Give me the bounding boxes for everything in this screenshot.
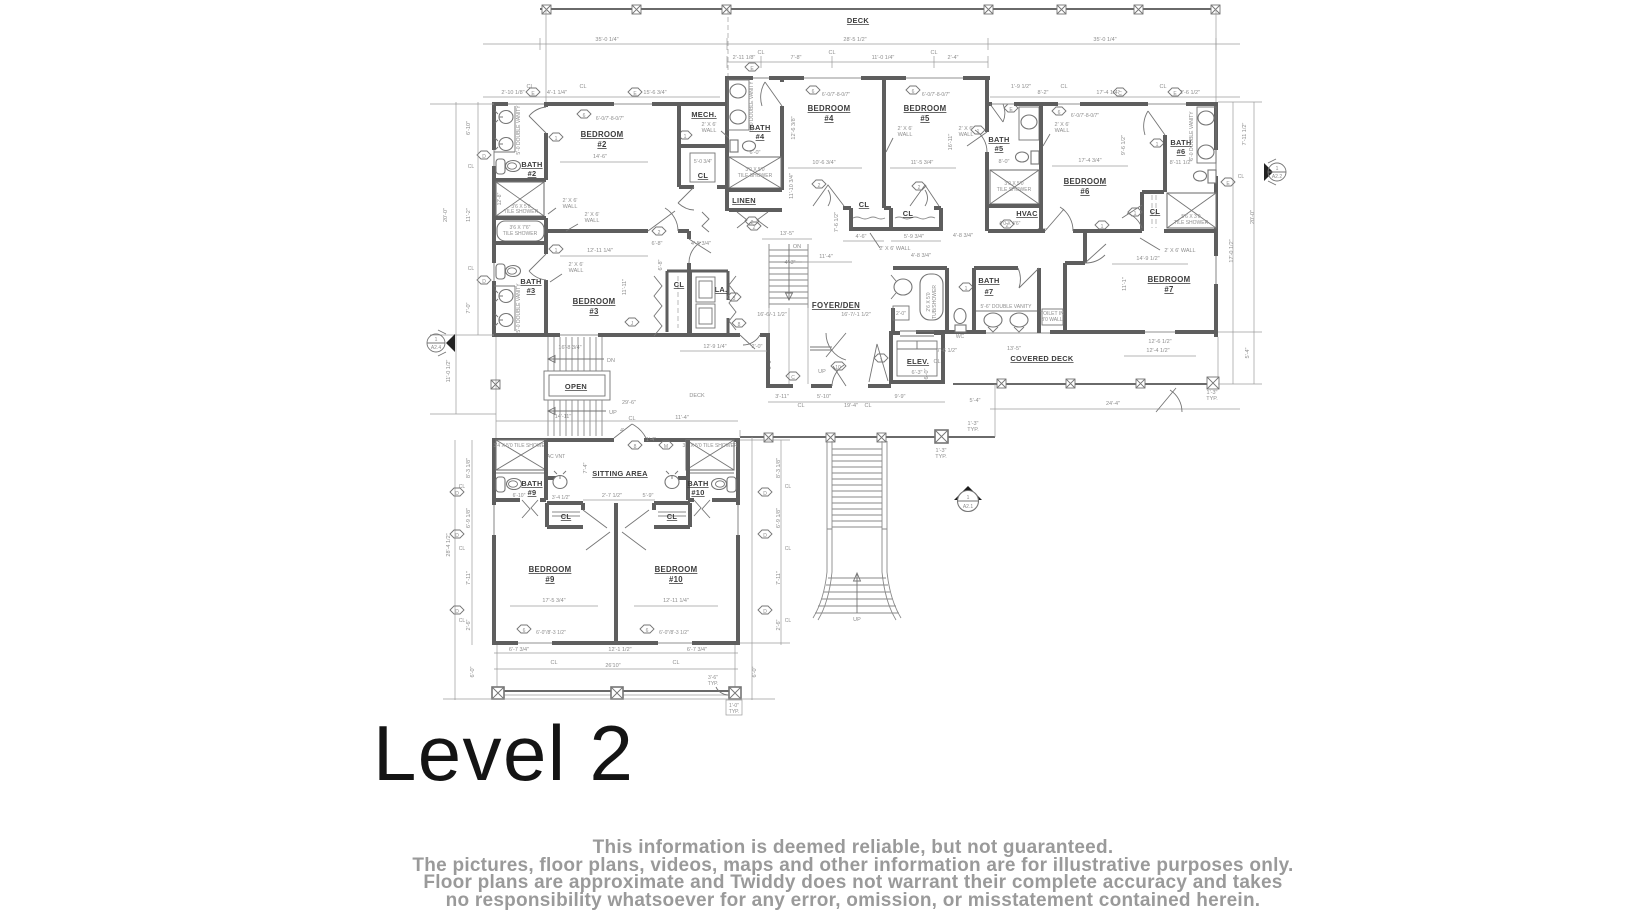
svg-text:5'-10": 5'-10": [817, 394, 831, 400]
svg-text:2: 2: [918, 185, 921, 191]
svg-text:#3: #3: [589, 307, 599, 316]
svg-text:WALL: WALL: [585, 218, 600, 224]
svg-text:CL: CL: [459, 618, 466, 624]
svg-text:11'-10 3/4": 11'-10 3/4": [789, 173, 795, 199]
svg-text:13'-5": 13'-5": [780, 231, 794, 237]
svg-text:6'-0"/8'-3 1/2": 6'-0"/8'-3 1/2": [536, 630, 566, 636]
svg-text:BATH: BATH: [521, 479, 542, 488]
svg-text:1'-9 1/2": 1'-9 1/2": [1011, 84, 1031, 90]
svg-text:17'-5 3/4": 17'-5 3/4": [542, 598, 565, 604]
svg-text:CL: CL: [933, 359, 940, 365]
svg-text:WALL: WALL: [959, 132, 974, 138]
svg-text:6'-7 3/4": 6'-7 3/4": [687, 647, 707, 653]
svg-text:3'0 WALL: 3'0 WALL: [1041, 317, 1063, 323]
svg-text:DN: DN: [607, 358, 615, 364]
svg-text:BATH: BATH: [978, 276, 999, 285]
svg-text:1: 1: [684, 134, 687, 140]
svg-text:TYP.: TYP.: [935, 454, 947, 460]
svg-text:16'-7/-1 1/2": 16'-7/-1 1/2": [841, 312, 871, 318]
svg-text:2'-6": 2'-6": [776, 619, 782, 630]
svg-text:1: 1: [965, 286, 968, 292]
svg-text:4'-6": 4'-6": [856, 234, 867, 240]
svg-text:6'-10": 6'-10": [466, 121, 472, 135]
svg-text:TILE SHOWER: TILE SHOWER: [1174, 220, 1209, 226]
svg-text:5'-9 3/4": 5'-9 3/4": [904, 234, 924, 240]
svg-text:5'-0 DOUBLE VANITY: 5'-0 DOUBLE VANITY: [516, 283, 522, 333]
svg-text:CL: CL: [1060, 84, 1067, 90]
svg-text:BATH: BATH: [520, 277, 541, 286]
svg-text:WALL: WALL: [898, 132, 913, 138]
svg-text:CL: CL: [459, 546, 466, 552]
svg-text:4'-1 1/4": 4'-1 1/4": [547, 90, 567, 96]
svg-text:6'-9 1/8": 6'-9 1/8": [776, 508, 782, 528]
svg-text:8'-3 1/8": 8'-3 1/8": [466, 458, 472, 478]
svg-text:BEDROOM: BEDROOM: [573, 297, 616, 306]
svg-text:6'-0": 6'-0": [752, 666, 758, 677]
svg-text:12'-6 3/8": 12'-6 3/8": [791, 116, 797, 139]
svg-text:3'-4 1/2": 3'-4 1/2": [552, 495, 571, 501]
svg-text:D: D: [482, 154, 486, 160]
svg-text:6'-0": 6'-0": [924, 368, 930, 379]
svg-text:26'10": 26'10": [605, 663, 620, 669]
svg-text:4'-5 3/4": 4'-5 3/4": [691, 241, 711, 247]
svg-text:12'-8": 12'-8": [497, 192, 503, 205]
svg-text:CL: CL: [550, 660, 557, 666]
svg-text:#10: #10: [691, 488, 704, 497]
svg-text:WALL: WALL: [702, 128, 717, 134]
svg-text:12'-9 1/4": 12'-9 1/4": [703, 344, 726, 350]
svg-text:BATH: BATH: [988, 135, 1009, 144]
svg-text:CL: CL: [828, 50, 835, 56]
svg-text:4'-8 3/4": 4'-8 3/4": [911, 253, 931, 259]
svg-text:1: 1: [1134, 211, 1137, 217]
svg-text:1: 1: [1276, 166, 1279, 172]
svg-text:11'-5 3/4": 11'-5 3/4": [911, 160, 934, 166]
svg-text:11'-0 1/2": 11'-0 1/2": [446, 360, 452, 383]
svg-text:TYP.: TYP.: [729, 709, 739, 715]
svg-text:3'-11": 3'-11": [775, 394, 789, 400]
svg-text:17'-0 1/2": 17'-0 1/2": [1229, 239, 1235, 262]
svg-text:CL: CL: [903, 209, 914, 218]
svg-text:6'-0"/8'-3 1/2": 6'-0"/8'-3 1/2": [659, 630, 689, 636]
svg-text:D: D: [482, 279, 486, 285]
svg-text:6: 6: [583, 113, 586, 119]
svg-text:#7: #7: [985, 287, 994, 296]
svg-text:11'-1": 11'-1": [1122, 277, 1128, 291]
svg-text:16'-11": 16'-11": [948, 134, 954, 151]
svg-text:2'-4": 2'-4": [948, 55, 959, 61]
svg-text:6'-0": 6'-0": [750, 150, 761, 156]
svg-text:1: 1: [555, 136, 558, 142]
svg-text:#3: #3: [527, 286, 536, 295]
svg-text:2' X 6' WALL: 2' X 6' WALL: [879, 246, 910, 252]
svg-text:CL: CL: [1238, 174, 1245, 180]
svg-text:19'-4": 19'-4": [844, 403, 858, 409]
svg-text:20'-0": 20'-0": [1250, 210, 1256, 224]
svg-text:COVERED DECK: COVERED DECK: [1010, 354, 1074, 363]
svg-text:UP: UP: [853, 617, 861, 623]
svg-text:12'-6 1/2": 12'-6 1/2": [1148, 339, 1171, 345]
svg-text:6'-3": 6'-3": [912, 370, 923, 376]
svg-text:3'4 X 5'0 TILE SHOWER: 3'4 X 5'0 TILE SHOWER: [683, 443, 738, 449]
svg-text:CL: CL: [579, 84, 586, 90]
svg-text:1: 1: [1156, 142, 1159, 148]
svg-text:C: C: [1118, 91, 1122, 97]
svg-text:5'-0 DOUBLE VANITY: 5'-0 DOUBLE VANITY: [749, 81, 755, 131]
svg-text:2'-7 1/2": 2'-7 1/2": [602, 493, 622, 499]
svg-text:D: D: [455, 609, 459, 615]
svg-text:13'-5": 13'-5": [1007, 346, 1021, 352]
svg-text:11'-4": 11'-4": [819, 254, 833, 260]
svg-text:1: 1: [967, 495, 970, 501]
svg-text:2' X 6' WALL: 2' X 6' WALL: [1164, 248, 1195, 254]
svg-text:BEDROOM: BEDROOM: [655, 565, 698, 574]
svg-text:16'-6/-1 1/2": 16'-6/-1 1/2": [757, 312, 787, 318]
svg-text:A2.4: A2.4: [431, 345, 442, 351]
svg-text:8'-3 1/8": 8'-3 1/8": [776, 458, 782, 478]
svg-text:8: 8: [738, 322, 741, 328]
svg-text:1: 1: [555, 248, 558, 254]
svg-text:LINEN: LINEN: [732, 196, 756, 205]
svg-text:29'-6": 29'-6": [622, 400, 636, 406]
svg-text:CL: CL: [930, 50, 937, 56]
svg-text:UP: UP: [609, 410, 617, 416]
svg-text:7'-11": 7'-11": [776, 571, 782, 585]
svg-text:CL: CL: [1159, 84, 1166, 90]
svg-text:TILE SHOWER: TILE SHOWER: [504, 209, 539, 215]
svg-text:6'-0 DOUBLE VANITY: 6'-0 DOUBLE VANITY: [1189, 111, 1195, 161]
svg-text:2: 2: [751, 220, 754, 226]
svg-text:1'-4": 1'-4": [646, 437, 656, 443]
svg-text:TUB/SHOWER: TUB/SHOWER: [932, 285, 938, 319]
svg-text:2'-6 1/2": 2'-6 1/2": [1180, 90, 1200, 96]
svg-text:WALL: WALL: [569, 268, 584, 274]
svg-text:CL: CL: [757, 50, 764, 56]
svg-text:7'-6 1/2": 7'-6 1/2": [937, 348, 957, 354]
svg-text:11'-0 1/4": 11'-0 1/4": [872, 55, 895, 61]
svg-text:3: 3: [733, 296, 736, 302]
svg-text:CL: CL: [526, 84, 533, 90]
svg-text:CL: CL: [797, 403, 804, 409]
svg-text:D: D: [763, 491, 767, 497]
svg-text:CL: CL: [667, 512, 678, 521]
svg-text:6'-0/7'-8-0/7": 6'-0/7'-8-0/7": [596, 116, 624, 122]
svg-text:5'-6" DOUBLE VANITY: 5'-6" DOUBLE VANITY: [981, 304, 1033, 310]
svg-text:CL: CL: [859, 200, 870, 209]
svg-text:BEDROOM: BEDROOM: [1148, 275, 1191, 284]
svg-text:BEDROOM: BEDROOM: [808, 104, 851, 113]
svg-text:9'-9": 9'-9": [895, 394, 906, 400]
svg-text:WALL: WALL: [563, 204, 578, 210]
svg-text:1: 1: [880, 358, 883, 364]
svg-text:M: M: [664, 444, 668, 450]
svg-text:CL: CL: [672, 660, 679, 666]
svg-text:17'-4 3/4": 17'-4 3/4": [1078, 158, 1101, 164]
svg-text:4': 4': [620, 428, 624, 434]
svg-text:D: D: [763, 533, 767, 539]
svg-text:6'-0/7'-8-0/7": 6'-0/7'-8-0/7": [1071, 113, 1099, 119]
svg-text:12'-11 1/4": 12'-11 1/4": [663, 598, 689, 604]
svg-text:5'-0 3/4": 5'-0 3/4": [694, 159, 713, 165]
svg-text:6: 6: [1058, 110, 1061, 116]
svg-text:BEDROOM: BEDROOM: [1064, 177, 1107, 186]
svg-text:2'-11 1/8": 2'-11 1/8": [733, 55, 756, 61]
svg-text:6'-0": 6'-0": [470, 666, 476, 677]
svg-text:SITTING AREA: SITTING AREA: [592, 469, 648, 478]
svg-text:LA.: LA.: [715, 285, 728, 294]
svg-text:CL: CL: [468, 266, 475, 272]
svg-text:14'-9 1/2": 14'-9 1/2": [1136, 256, 1159, 262]
svg-text:6: 6: [912, 89, 915, 95]
svg-text:6: 6: [523, 628, 526, 634]
svg-text:CL: CL: [785, 546, 792, 552]
svg-text:4'-8 3/4": 4'-8 3/4": [953, 233, 973, 239]
svg-text:WALL: WALL: [1055, 128, 1070, 134]
svg-text:OPEN: OPEN: [565, 382, 587, 391]
svg-text:7'-11 1/2": 7'-11 1/2": [1242, 123, 1248, 146]
svg-text:7'-8": 7'-8": [791, 55, 802, 61]
svg-text:6: 6: [646, 628, 649, 634]
svg-text:5'-4": 5'-4": [1245, 347, 1251, 358]
svg-text:9'-6 1/2": 9'-6 1/2": [1121, 135, 1127, 155]
svg-text:BEDROOM: BEDROOM: [581, 130, 624, 139]
svg-text:FOYER/DEN: FOYER/DEN: [812, 301, 860, 310]
svg-text:C: C: [791, 375, 795, 381]
svg-text:12'-4 1/2": 12'-4 1/2": [1146, 348, 1169, 354]
svg-text:11'-4": 11'-4": [675, 415, 689, 421]
svg-text:7'-0": 7'-0": [466, 302, 472, 313]
svg-text:2'-0": 2'-0": [896, 311, 906, 317]
svg-text:UP: UP: [818, 369, 826, 375]
svg-text:ELEV.: ELEV.: [907, 357, 929, 366]
svg-text:BEDROOM: BEDROOM: [529, 565, 572, 574]
svg-text:#9: #9: [545, 575, 555, 584]
svg-text:4'-3": 4'-3": [785, 260, 796, 266]
svg-text:CL: CL: [674, 280, 685, 289]
svg-text:10: 10: [835, 365, 841, 371]
svg-text:5'-4": 5'-4": [970, 398, 981, 404]
svg-text:#5: #5: [995, 144, 1004, 153]
svg-text:6: 6: [812, 89, 815, 95]
svg-text:CL: CL: [698, 171, 709, 180]
svg-text:DECK: DECK: [689, 393, 705, 399]
svg-text:6'-0/7'-8-0/7": 6'-0/7'-8-0/7": [822, 92, 850, 98]
svg-text:35'-0 1/4": 35'-0 1/4": [595, 37, 618, 43]
svg-text:ON: ON: [793, 244, 801, 250]
svg-text:12'-1 1/2": 12'-1 1/2": [608, 647, 631, 653]
svg-text:BATH: BATH: [521, 160, 542, 169]
svg-text:A2.1: A2.1: [963, 504, 974, 510]
svg-text:6'-8": 6'-8": [652, 241, 663, 247]
svg-text:TILE SHOWER: TILE SHOWER: [997, 187, 1032, 193]
svg-text:WC: WC: [956, 334, 965, 340]
svg-text:20'-0": 20'-0": [443, 208, 449, 222]
svg-text:8'-2": 8'-2": [1038, 90, 1049, 96]
svg-text:10'-6 3/4": 10'-6 3/4": [812, 160, 835, 166]
svg-text:TYP.: TYP.: [708, 681, 718, 687]
svg-text:#6: #6: [1177, 147, 1186, 156]
svg-text:DECK: DECK: [847, 16, 870, 25]
svg-text:#9: #9: [528, 488, 537, 497]
svg-text:8'-0": 8'-0": [999, 159, 1010, 165]
svg-text:D: D: [455, 491, 459, 497]
svg-text:TYP.: TYP.: [967, 427, 979, 433]
svg-text:2'-0": 2'-0": [752, 344, 763, 350]
svg-text:TILE SHOWER: TILE SHOWER: [503, 231, 538, 237]
svg-text:#6: #6: [1080, 187, 1090, 196]
svg-text:6'-7 3/4": 6'-7 3/4": [509, 647, 529, 653]
svg-text:#2: #2: [597, 140, 607, 149]
svg-text:35'-0 1/4": 35'-0 1/4": [1093, 37, 1116, 43]
svg-text:CL: CL: [459, 484, 466, 490]
svg-text:16'-8 3/4": 16'-8 3/4": [558, 345, 581, 351]
svg-text:HVAC: HVAC: [1016, 209, 1038, 218]
svg-text:#4: #4: [824, 114, 834, 123]
svg-text:5'-0 DOUBLE VANITY: 5'-0 DOUBLE VANITY: [516, 105, 522, 155]
svg-text:6'-0/7'-8-0/7": 6'-0/7'-8-0/7": [922, 92, 950, 98]
svg-text:TYP.: TYP.: [1206, 396, 1218, 402]
svg-text:#7: #7: [1164, 285, 1173, 294]
svg-text:2: 2: [818, 183, 821, 189]
svg-text:24'-4": 24'-4": [1106, 401, 1120, 407]
svg-text:D: D: [763, 609, 767, 615]
svg-text:12'-11 1/4": 12'-11 1/4": [587, 248, 613, 254]
svg-text:AC VNT: AC VNT: [547, 454, 565, 460]
svg-text:#10: #10: [669, 575, 683, 584]
svg-text:8: 8: [634, 444, 637, 450]
svg-text:14'-11": 14'-11": [555, 414, 572, 420]
svg-text:1: 1: [435, 337, 438, 343]
svg-text:#4: #4: [756, 132, 765, 141]
svg-text:#5: #5: [920, 114, 930, 123]
svg-text:A2.2: A2.2: [1272, 174, 1283, 180]
svg-text:5'-9": 5'-9": [643, 493, 654, 499]
svg-text:7'-4": 7'-4": [583, 462, 589, 473]
svg-text:6'-9 1/8": 6'-9 1/8": [466, 508, 472, 528]
svg-text:15'-6 3/4": 15'-6 3/4": [643, 90, 666, 96]
svg-text:D: D: [455, 533, 459, 539]
svg-text:7'-6 1/2": 7'-6 1/2": [834, 212, 840, 232]
svg-text:7'-11": 7'-11": [466, 571, 472, 585]
svg-text:CL: CL: [468, 164, 475, 170]
svg-text:2: 2: [1006, 223, 1009, 229]
svg-text:3'4 X 5'0 TILE SHOWER: 3'4 X 5'0 TILE SHOWER: [494, 443, 549, 449]
svg-text:MECH.: MECH.: [691, 110, 716, 119]
svg-text:CL: CL: [561, 512, 572, 521]
svg-text:BATH: BATH: [687, 479, 708, 488]
svg-text:#2: #2: [528, 169, 537, 178]
svg-text:CL: CL: [785, 618, 792, 624]
svg-text:11'-11": 11'-11": [622, 279, 628, 295]
svg-text:2: 2: [658, 230, 661, 236]
svg-text:2'-10 1/8": 2'-10 1/8": [501, 90, 524, 96]
svg-text:BEDROOM: BEDROOM: [904, 104, 947, 113]
svg-text:CL: CL: [785, 484, 792, 490]
svg-text:TILE SHOWER: TILE SHOWER: [738, 173, 773, 179]
svg-text:11'-2": 11'-2": [466, 208, 472, 222]
svg-text:2'-6": 2'-6": [466, 619, 472, 630]
svg-text:28'-4 1/2": 28'-4 1/2": [446, 533, 452, 556]
svg-text:CL: CL: [1150, 207, 1161, 216]
svg-text:CL: CL: [864, 403, 871, 409]
svg-text:28'-5 1/2": 28'-5 1/2": [843, 37, 866, 43]
svg-text:6'-8": 6'-8": [658, 259, 664, 270]
svg-text:14'-6": 14'-6": [593, 154, 607, 160]
